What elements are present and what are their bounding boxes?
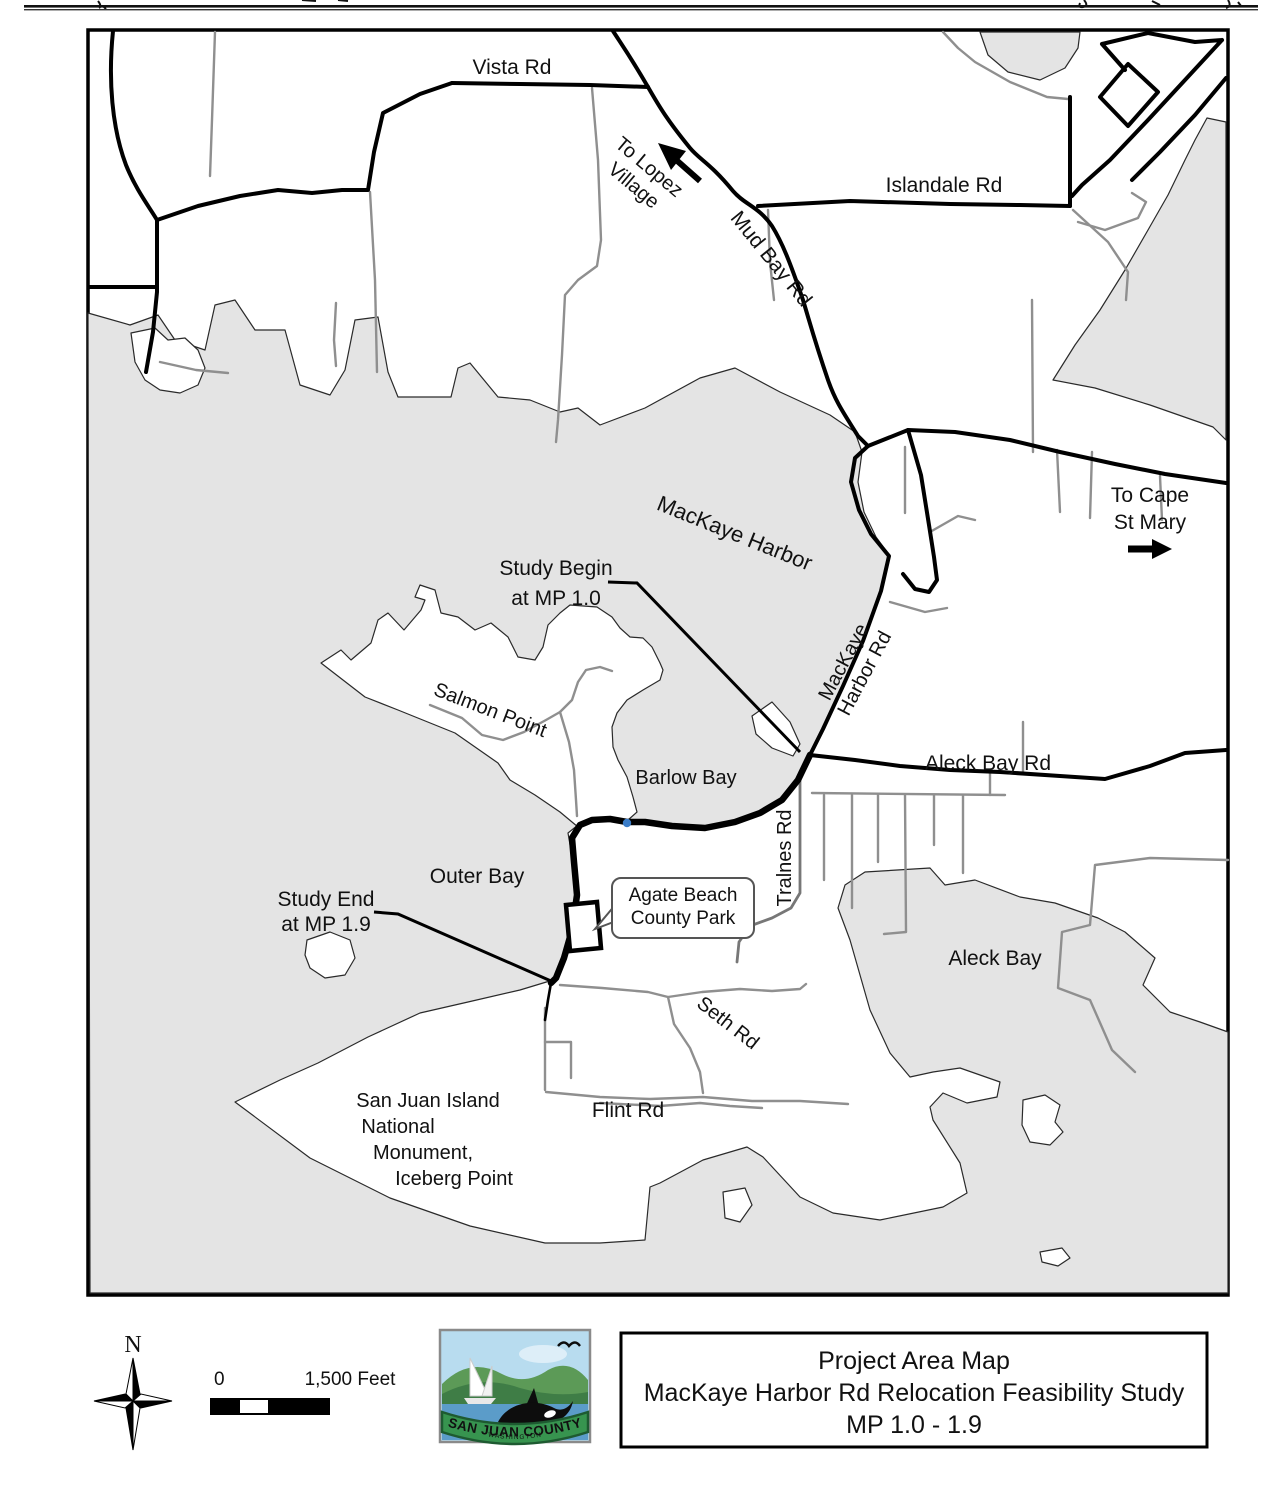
map-label-outer-bay: Outer Bay <box>430 865 525 888</box>
map-label-islandale-rd: Islandale Rd <box>886 174 1003 197</box>
map-label-aleck-bay: Aleck Bay <box>948 947 1042 970</box>
map-title-box: Project Area Map MacKaye Harbor Rd Reloc… <box>621 1333 1207 1447</box>
map-label-barlow-bay: Barlow Bay <box>635 767 736 789</box>
scale-distance-label: 1,500 Feet <box>305 1369 397 1390</box>
cloud <box>519 1345 567 1363</box>
scale-bar-white-segment <box>240 1400 268 1413</box>
map-label-flint-rd: Flint Rd <box>592 1099 664 1122</box>
map-label-aleck-bay-rd: Aleck Bay Rd <box>925 752 1051 775</box>
blue-dot-marker <box>623 819 631 827</box>
header-rule-top <box>24 5 1258 8</box>
agate-beach-callout: Agate Beach County Park <box>595 878 754 938</box>
callout-line-1: Agate Beach <box>629 885 738 906</box>
north-label: N <box>124 1332 141 1358</box>
sailboat-hull <box>464 1398 496 1404</box>
san-juan-county-logo: SAN JUAN COUNTY WASHINGTON <box>440 1330 590 1444</box>
callout-line-2: County Park <box>631 908 736 929</box>
map-label-tralnes-rd: Tralnes Rd <box>774 809 796 906</box>
scale-bar-black <box>210 1398 330 1415</box>
title-line-2: MacKaye Harbor Rd Relocation Feasibility… <box>644 1379 1185 1407</box>
scale-zero-label: 0 <box>214 1369 225 1390</box>
project-area-map-page: Agate Beach County Park Vista RdIslandal… <box>0 0 1280 1510</box>
title-line-3: MP 1.0 - 1.9 <box>846 1411 982 1439</box>
map-label-vista-rd: Vista Rd <box>473 56 552 79</box>
title-line-1: Project Area Map <box>818 1347 1010 1375</box>
header-rule-bottom <box>24 9 1258 10</box>
agate-beach-park-boundary <box>566 902 601 951</box>
